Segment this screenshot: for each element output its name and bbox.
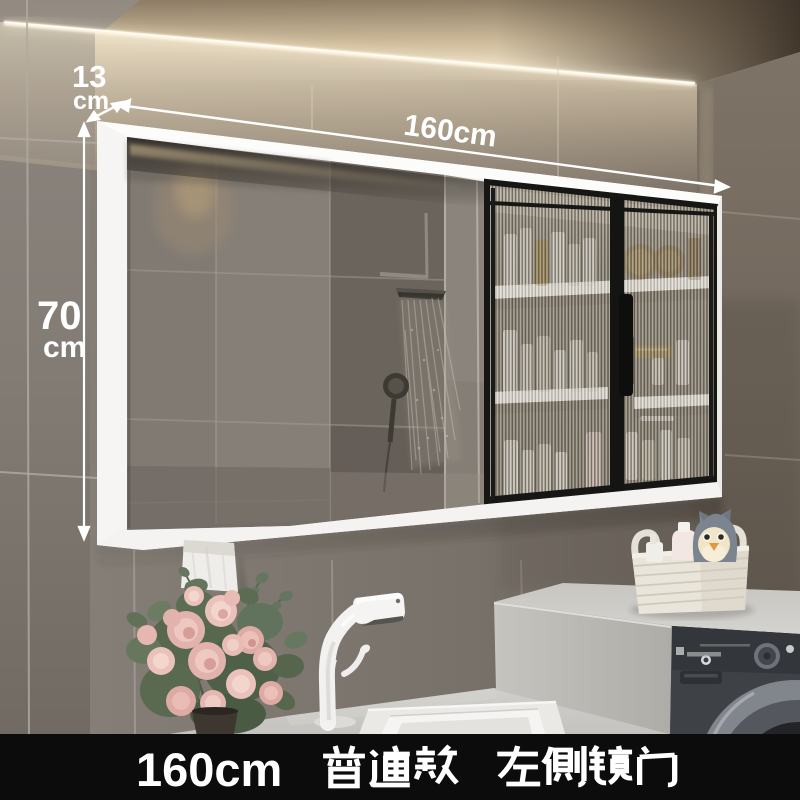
svg-text:cm: cm — [43, 331, 86, 364]
svg-text:cm: cm — [73, 87, 109, 115]
svg-text:160cm: 160cm — [136, 743, 282, 796]
